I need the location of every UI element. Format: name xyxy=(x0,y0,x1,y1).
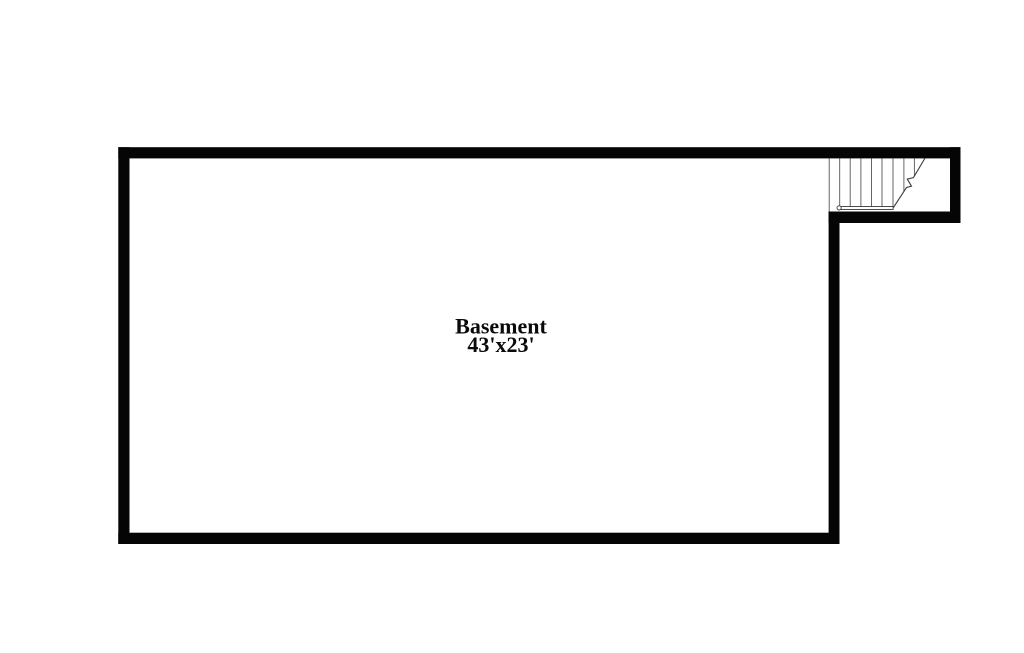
svg-text:43'x23': 43'x23' xyxy=(467,332,534,357)
